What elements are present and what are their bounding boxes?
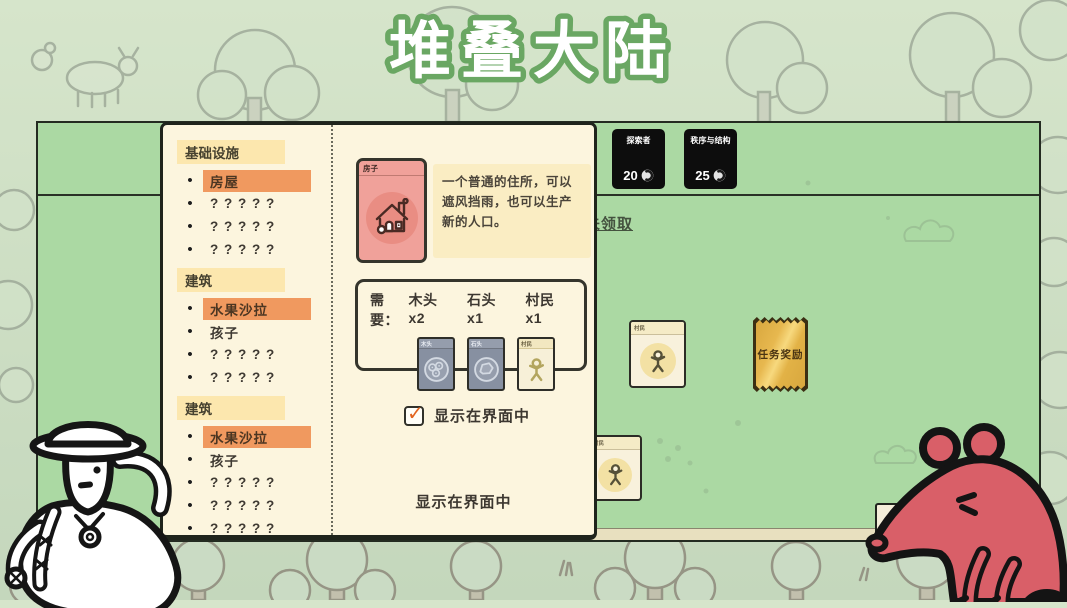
cardopedia-item[interactable]: •孩子	[177, 320, 331, 343]
bullet-icon: •	[177, 347, 203, 362]
show-in-ui-checkbox[interactable]: ✓	[404, 406, 424, 426]
house-icon	[372, 198, 412, 238]
requires-prefix: 需要：	[370, 290, 409, 330]
card-description: 一个普通的住所，可以遮风挡雨，也可以生产新的人口。	[433, 164, 591, 258]
coin-icon	[641, 169, 654, 182]
bullet-icon: •	[177, 324, 203, 339]
cardopedia-item[interactable]: •? ? ? ? ?	[177, 215, 331, 238]
villager-icon	[603, 462, 628, 487]
cardopedia-item-label: 房屋	[203, 170, 311, 192]
pack-cost-value: 25	[695, 168, 709, 183]
pack-name: 探索者	[627, 136, 651, 146]
cardopedia-item[interactable]: •? ? ? ? ?	[177, 238, 331, 261]
cardopedia-item-label: ? ? ? ? ?	[203, 346, 282, 363]
cardopedia-item[interactable]: •? ? ? ? ?	[177, 366, 331, 389]
requirement-card-stone: 石头	[467, 337, 505, 391]
cardopedia-detail: 房子	[333, 125, 594, 535]
game-title: 堆叠大陆	[0, 0, 1067, 105]
cardopedia-item-label: 孩子	[203, 321, 246, 343]
checkbox-label: 显示在界面中	[434, 405, 530, 426]
card-title: 村民	[590, 437, 640, 450]
cardopedia-item-label: ? ? ? ? ?	[203, 369, 282, 386]
bullet-icon: •	[177, 301, 203, 316]
requirement-card-wood: 木头	[417, 337, 455, 391]
villager-card[interactable]: 村民	[629, 320, 686, 388]
requirement-label: 村民x1	[526, 290, 569, 330]
cardopedia-item-label: 水果沙拉	[203, 298, 311, 320]
card-title: 村民	[631, 322, 684, 335]
page-title: 堆叠大陆	[389, 17, 677, 86]
bullet-icon: •	[177, 242, 203, 257]
bullet-icon: •	[177, 173, 203, 188]
ticket-label: 任务奖励	[758, 347, 804, 362]
cardopedia-section-header: 基础设施	[177, 140, 285, 164]
quest-reward-ticket[interactable]: 任务奖励	[753, 317, 808, 392]
card-pack-explorer[interactable]: 探索者 20	[612, 129, 665, 189]
cardopedia-item-label: ? ? ? ? ?	[203, 195, 282, 212]
requirement-card-villager: 村民	[517, 337, 555, 391]
cardopedia-item[interactable]: •? ? ? ? ?	[177, 192, 331, 215]
requirement-label: 木头x2	[409, 290, 452, 330]
stone-icon	[473, 356, 500, 383]
cardopedia-item[interactable]: •? ? ? ? ?	[177, 343, 331, 366]
bullet-icon: •	[177, 219, 203, 234]
pack-cost-value: 20	[623, 168, 637, 183]
requirements-box: 需要： 木头x2 石头x1 村民x1 木头	[355, 279, 587, 371]
show-in-ui-row[interactable]: ✓ 显示在界面中	[404, 405, 530, 426]
pack-name: 秩序与结构	[691, 136, 731, 146]
house-card-preview: 房子	[356, 158, 427, 263]
cardopedia-section-header: 建筑	[177, 268, 285, 292]
coin-icon	[713, 169, 726, 182]
villager-icon	[645, 348, 671, 374]
cardopedia-item[interactable]: •房屋	[177, 169, 331, 192]
checkmark-icon: ✓	[407, 401, 424, 426]
cardopedia-item[interactable]: •水果沙拉	[177, 297, 331, 320]
card-pack-order-structure[interactable]: 秩序与结构 25	[684, 129, 737, 189]
cardopedia-item-label: ? ? ? ? ?	[203, 241, 282, 258]
house-card-title: 房子	[359, 161, 424, 176]
rat-character	[862, 412, 1067, 602]
wood-icon	[423, 356, 450, 383]
villager-icon	[523, 356, 550, 383]
cardopedia-panel: 基础设施•房屋•? ? ? ? ?•? ? ? ? ?•? ? ? ? ?建筑•…	[160, 122, 597, 540]
footer-label: 显示在界面中	[333, 491, 594, 512]
cardopedia-item-label: ? ? ? ? ?	[203, 218, 282, 235]
bullet-icon: •	[177, 196, 203, 211]
requirement-label: 石头x1	[467, 290, 510, 330]
bullet-icon: •	[177, 370, 203, 385]
explorer-character	[0, 408, 222, 608]
